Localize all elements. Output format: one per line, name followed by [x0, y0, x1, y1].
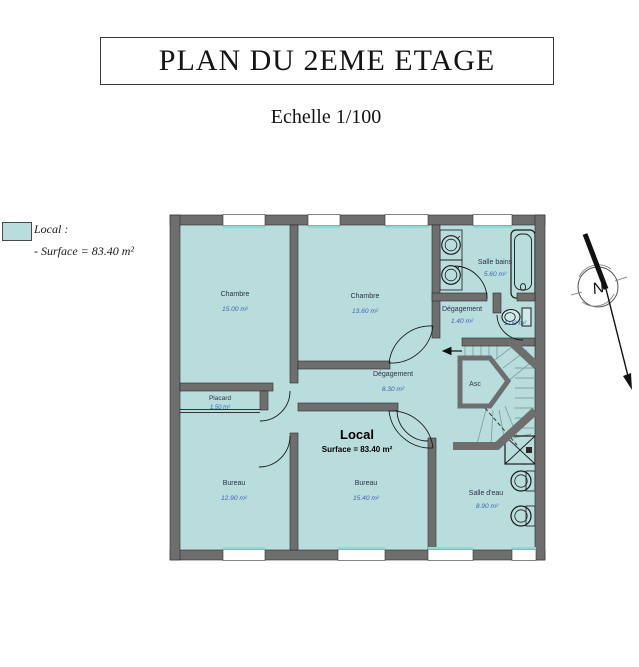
scale-label: Echelle 1/100 [100, 106, 552, 129]
room-area-chambre-1: 15.00 m² [222, 306, 249, 313]
legend-surface: - Surface = 83.40 m² [34, 244, 134, 259]
floor-plan: Chambre 15.00 m² Chambre 13.60 m² Salle … [165, 208, 560, 570]
room-label-degagement-1: Dégagement [442, 306, 482, 313]
room-label-placard: Placard [209, 395, 231, 402]
room-label-chambre-2: Chambre [351, 293, 380, 300]
page-title: PLAN DU 2EME ETAGE [159, 44, 495, 78]
title-box: PLAN DU 2EME ETAGE [100, 37, 554, 85]
room-area-degagement-2: 8.30 m² [382, 386, 405, 393]
room-area-salle-eau: 8.90 m² [476, 503, 499, 510]
room-label-bureau-2: Bureau [355, 480, 378, 487]
room-area-wc: 1.00 m² [504, 320, 527, 327]
room-area-degagement-1: 1.40 m² [451, 318, 474, 325]
room-label-degagement-2: Dégagement [373, 371, 413, 378]
room-area-salle-bains: 5.60 m² [484, 271, 507, 278]
local-title: Local [340, 427, 374, 442]
room-label-bureau-1: Bureau [223, 480, 246, 487]
room-label-chambre-1: Chambre [221, 291, 250, 298]
room-area-bureau-2: 15.40 m² [353, 495, 380, 502]
room-area-bureau-1: 12.90 m² [221, 495, 248, 502]
legend-color-swatch [2, 222, 32, 241]
room-area-chambre-2: 13.60 m² [352, 308, 379, 315]
room-label-salle-bains: Salle bains [478, 259, 513, 266]
local-surface: Surface = 83.40 m² [322, 445, 393, 454]
room-area-placard: 1.50 m² [210, 405, 231, 411]
page: PLAN DU 2EME ETAGE Echelle 1/100 Local :… [0, 0, 639, 667]
north-compass-icon: N [570, 224, 639, 399]
legend-title: Local : [34, 222, 68, 237]
room-label-salle-eau: Salle d'eau [469, 490, 504, 497]
room-label-ascenseur: Asc [469, 381, 481, 388]
